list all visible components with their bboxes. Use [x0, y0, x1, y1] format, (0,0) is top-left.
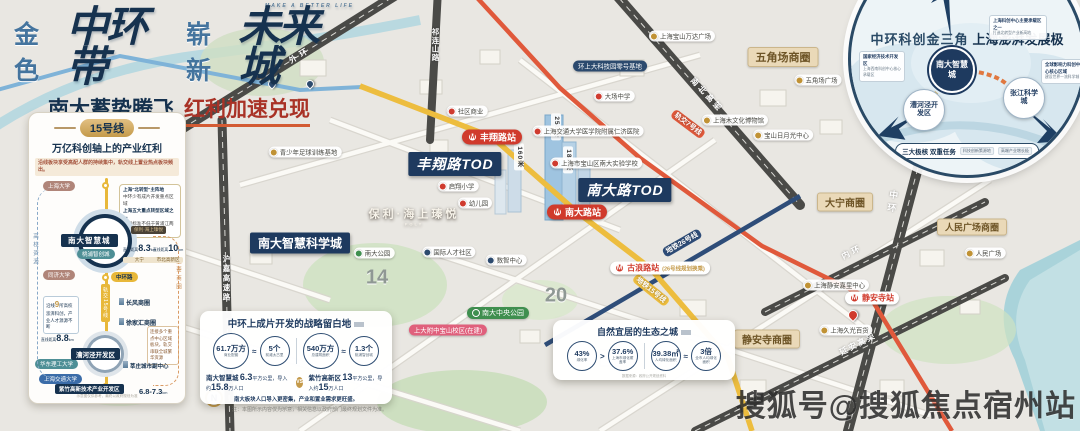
- poi-label: 人民广场: [965, 248, 1006, 259]
- card2-stats: 43%绿化率 > 37.6%上海市绿化覆盖率 39.38㎡人均绿化面积 ≈ 3倍…: [559, 341, 729, 371]
- title-part3: 崭新: [186, 15, 234, 87]
- zizhu-label: 紫竹高新技术产业开发区: [55, 384, 124, 394]
- poi-label: 南大公园: [354, 248, 395, 259]
- target-daning: 大宁: [123, 257, 156, 263]
- inset-node-nanda: 南大智慧城: [929, 47, 975, 93]
- sohu-watermark: 搜狐号@搜狐焦点宿州站: [736, 381, 1076, 425]
- line15-info-panel: 15号线 万亿科创轴上的产业红利 沿线板块享受高配人群的持续集中，轨交线上置业热…: [28, 112, 186, 404]
- card1-title: 中环上成片开发的战略留白地: [206, 316, 386, 330]
- xinzhuang-subcenter: 莘庄城市副中心: [123, 361, 169, 370]
- poi-green-icon: [355, 249, 363, 257]
- approx-symbol: ≈: [342, 347, 346, 356]
- changfeng-circle: 长风商圈: [119, 298, 150, 307]
- gulanglu-note: (26号线规划换乘): [662, 264, 705, 272]
- poi-label: 大场中学: [594, 91, 635, 102]
- inset-node-caohejing: 漕河泾开发区: [903, 89, 945, 131]
- buildings-icon: [123, 361, 128, 368]
- project-name-label: 保利·海上瑧悦POLY: [369, 206, 460, 227]
- eco-stat-card: 自然宜居的生态之城 43%绿化率 > 37.6%上海市绿化覆盖率 39.38㎡人…: [553, 320, 735, 380]
- poi-gold-icon: [754, 131, 762, 139]
- station-dot: [102, 182, 109, 189]
- divider: [296, 338, 297, 364]
- poi-label: 上大附中宝山校区(在建): [409, 325, 487, 336]
- gulanglu-station-badge: M古浪路站(26号线规划换乘): [610, 262, 710, 275]
- distance-zizhu: 6.8-7.3km: [139, 381, 167, 399]
- callout-line3: 上海五大重点转型区域之一: [123, 208, 174, 220]
- inset-chip2: 高端产业增长极: [998, 147, 1032, 155]
- xujiahui-circle: 徐家汇商圈: [119, 318, 156, 327]
- title-part4: MAKE A BETTER LIFE未来城: [238, 4, 354, 87]
- inset-box-top: 上海科创中心主要承载区之一 打造北转型产业新高地: [989, 15, 1047, 40]
- jingansi-station-badge: M静安寺站: [845, 292, 899, 305]
- poi-navy-icon: [487, 256, 495, 264]
- park-icon: [472, 309, 480, 317]
- metro-logo-icon: M: [615, 264, 624, 273]
- poi-label: 上海宝山万达广场: [649, 31, 715, 42]
- metro-logo-icon: M: [468, 133, 477, 142]
- poi-label: 上海木文化博物馆: [702, 115, 768, 126]
- card1-stats: 61.7万方商业配套 ≈ 5个前滩太古里 540万方总建筑面积 ≈ 1.3个桃浦…: [206, 333, 386, 369]
- poi-gold-icon: [804, 281, 812, 289]
- inset-node-zhangjiang: 张江科学城: [1003, 77, 1045, 119]
- poi-label: 数智中心: [486, 255, 527, 266]
- stat-green-percap: 39.38㎡人均绿化面积: [651, 341, 681, 371]
- poi-gold-icon: [796, 76, 804, 84]
- poi-gold-icon: [703, 116, 711, 124]
- poi-gold-icon: [966, 249, 974, 257]
- approx-symbol: ≈: [684, 352, 688, 361]
- strategy-stat-card: 中环上成片开发的战略留白地 61.7万方商业配套 ≈ 5个前滩太古里 540万方…: [200, 311, 392, 404]
- poi-gold-icon: [270, 148, 278, 156]
- poi-label: 国际人才社区: [422, 247, 475, 258]
- poi-label: 启翔小学: [438, 181, 479, 192]
- card1-footnote: 数据来源：政府公开规划资料: [206, 405, 386, 410]
- card1-conclusion: 南大板块人口导入更密集，产业和置业需求更旺盛。: [206, 395, 386, 403]
- daning-circle-label: 大宁商圈: [817, 193, 873, 212]
- panel-title: 万亿科创轴上的产业红利: [35, 140, 179, 155]
- poi-navy-icon: [423, 248, 431, 256]
- poi-red-icon: [439, 182, 447, 190]
- distance-xujiahui: 直线距离8.8km: [41, 328, 74, 346]
- wujiaochang-circle-label: 五角场商圈: [748, 47, 819, 67]
- card1-compare: 南大智慧城 6.3平方公里，导入约15.8万人口 VS 紫竹高新区 13平方公里…: [206, 372, 386, 392]
- inset-title-main: 中环科创金三角: [870, 32, 968, 47]
- inset-box-right: 全球影响力科创中心核心区域 建设世界一流科学城: [1041, 59, 1080, 84]
- buildings-icon: [119, 298, 124, 305]
- poi-label: 上海静安嘉里中心: [803, 280, 869, 291]
- nandalu-station-badge: M南大路站: [547, 205, 607, 220]
- poi-label: 环上大科技园零号基地: [573, 61, 647, 72]
- poi-label: 五角场广场: [795, 75, 842, 86]
- deco-dash: [138, 127, 160, 129]
- card2-footnote: 数据来源：政府公开规划资料: [559, 373, 729, 378]
- golden-triangle-inset: 中环科创金三角上海澎湃发展极 南大智慧城 漕河泾开发区 张江科学城 国家经济技术…: [848, 0, 1080, 178]
- road-label-qilianshan: 祁连山路: [430, 28, 441, 62]
- metro-logo-icon: M: [553, 208, 562, 217]
- approx-symbol: ≈: [252, 347, 256, 356]
- central-park-badge: 南大中央公园: [467, 307, 529, 319]
- fengxiang-tod-label: 丰翔路TOD: [408, 152, 501, 176]
- card2-title: 自然宜居的生态之城: [559, 325, 729, 338]
- subtitle-right: 红利加速兑现: [184, 93, 310, 127]
- promo-map-poster: 金色 中环带 崭新 MAKE A BETTER LIFE未来城 南大蓄势腾飞 红…: [0, 0, 1080, 431]
- panel-note: 沿线板块享受高配人群的持续集中，轨交线上置业热点板块频出。: [35, 158, 179, 176]
- stat-commercial: 61.7万方商业配套: [213, 333, 249, 369]
- poi-label: 上海久光百货: [819, 325, 872, 336]
- stat-triple: 3倍全市人均绿化面积: [691, 341, 721, 371]
- nanda-smart-city-label: 南大智慧城: [61, 234, 118, 247]
- poi-gold-icon: [650, 32, 658, 40]
- taopu-label: 桃浦智创城: [77, 249, 115, 259]
- inset-bottom-pill: 三大极核 双重任务 科技创新策源地 高端产业增长极: [895, 143, 1039, 159]
- poi-label: 宝山日月光中心: [753, 130, 813, 141]
- callout-line2: 中环少有成片开发重点区域: [123, 194, 174, 206]
- poi-red-icon: [534, 127, 542, 135]
- divider: [644, 343, 645, 369]
- poi-red-icon: [459, 199, 467, 207]
- station-dot: [102, 274, 109, 281]
- plot-numeral-14: 14: [366, 267, 388, 290]
- title-part2: 中环带: [66, 7, 182, 87]
- panel-header: 15号线: [35, 119, 179, 137]
- tower-height-160: 160米: [514, 143, 524, 170]
- poi-red-icon: [551, 159, 559, 167]
- stat-green-rate: 43%绿化率: [567, 341, 597, 371]
- poi-label: 社区商业: [447, 106, 488, 117]
- distance-daning: 直线距离8.3km 大宁: [123, 238, 156, 263]
- greater-symbol: >: [600, 352, 605, 361]
- target-shibei: 市北高新区: [153, 257, 183, 263]
- vs-badge: VS: [296, 377, 304, 388]
- fengxiang-station-badge: M丰翔路站: [462, 130, 522, 145]
- plot-numeral-20: 20: [545, 285, 567, 308]
- compare-left-name: 南大智慧城: [206, 375, 239, 382]
- inset-chip1: 科技创新策源地: [960, 147, 994, 155]
- project-name-en: POLY: [369, 222, 460, 227]
- poi-red-icon: [595, 92, 603, 100]
- metro-diagram: 上海大学 上海"北转型"主阵地 中环少有成片开发重点区域 上海五大重点转型区域之…: [35, 178, 179, 392]
- poi-gold-icon: [820, 326, 828, 334]
- callout-line1: 上海"北转型"主阵地: [123, 187, 164, 192]
- main-title: 金色 中环带 崭新 MAKE A BETTER LIFE未来城: [14, 4, 354, 87]
- poi-label: 上海市宝山区南大实验学校: [550, 158, 642, 169]
- title-part1: 金色: [14, 15, 62, 87]
- inset-bottom-title: 三大极核 双重任务: [902, 146, 956, 156]
- renmin-circle-label: 人民广场商圈: [937, 219, 1007, 236]
- caohejing-label: 漕河泾开发区: [71, 348, 120, 360]
- zhonghuan-road-label: 中环路: [111, 272, 138, 282]
- buildings-icon: [119, 318, 124, 325]
- stat-taopu: 1.3个桃浦智创城: [349, 336, 379, 366]
- poster-header: 金色 中环带 崭新 MAKE A BETTER LIFE未来城 南大蓄势腾飞 红…: [14, 4, 354, 127]
- nanda-science-city-label: 南大智慧科学城: [250, 233, 350, 254]
- poi-label: 幼儿园: [458, 198, 492, 209]
- deco-dash: [54, 127, 76, 129]
- jingansi-circle-label: 静安寺商圈: [734, 330, 800, 349]
- project-tag: 保利·海上瑧悦: [131, 226, 166, 234]
- line15-vertical-label: 轨交15号线: [101, 284, 110, 322]
- stat-gfa: 540万方总建筑面积: [303, 333, 339, 369]
- university-arc: [37, 188, 71, 378]
- poi-label: 青少年足球训练基地: [269, 147, 342, 158]
- poi-red-icon: [448, 107, 456, 115]
- stat-city-rate: 37.6%上海市绿化覆盖率: [608, 341, 638, 371]
- metro-logo-icon: M: [850, 294, 859, 303]
- line15-badge: 15号线: [80, 119, 134, 137]
- poi-label: 上海交通大学医学院附属仁济医院: [533, 126, 644, 137]
- distance-shibei: 直线距离10km 市北高新区: [153, 238, 183, 263]
- nandalu-tod-label: 南大路TOD: [578, 178, 671, 202]
- stat-taikooli: 5个前滩太古里: [260, 336, 290, 366]
- inset-box-left: 国家经济技术开发区 上海西南科创中心核心承载区: [859, 51, 905, 82]
- compare-right-name: 紫竹高新区: [308, 375, 341, 382]
- road-label-hujia: 沪嘉高速路: [221, 255, 232, 303]
